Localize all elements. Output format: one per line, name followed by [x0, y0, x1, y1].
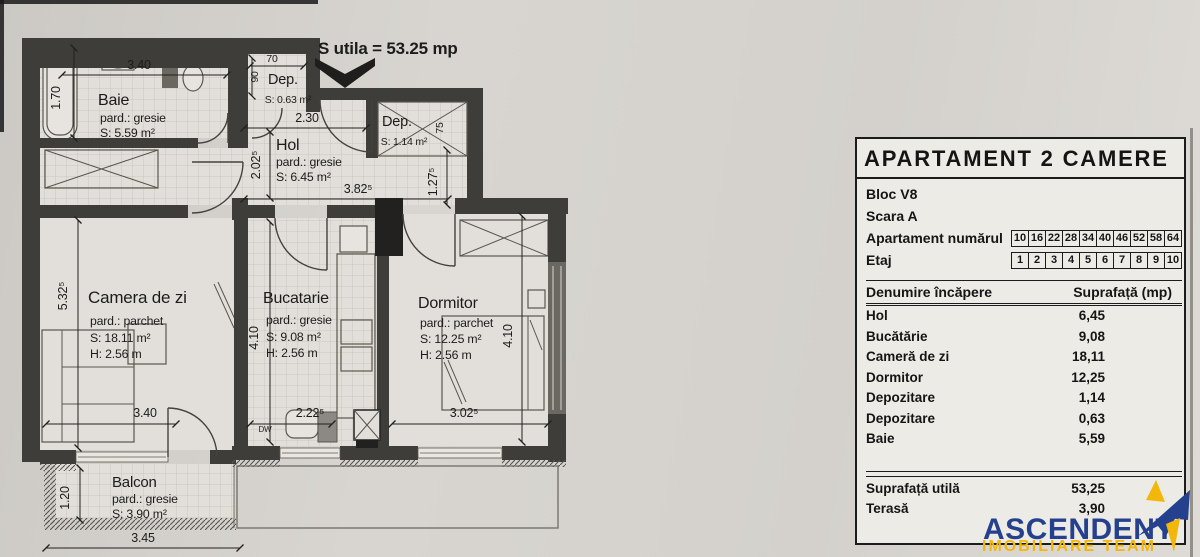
hol-area: S: 6.45 m² — [276, 170, 331, 184]
hol-name: Hol — [276, 137, 299, 154]
room-area: 5,59 — [1020, 429, 1105, 450]
room-area: 12,25 — [1020, 368, 1105, 389]
baie-floor: pard.: gresie — [100, 111, 166, 125]
boiler — [340, 226, 367, 252]
table-row: Bucătărie 9,08 — [866, 327, 1182, 348]
etaj-cell: 3 — [1045, 252, 1063, 269]
room-name: Cameră de zi — [866, 347, 1020, 368]
totals-separator — [866, 471, 1182, 477]
panel-title: APARTAMENT 2 CAMERE — [857, 139, 1184, 179]
dim-dormitor-w: 3.02⁵ — [450, 406, 479, 420]
apartament-number-cell: 40 — [1096, 230, 1114, 247]
table-header: Denumire încăpere Suprafață (mp) — [866, 281, 1182, 306]
etaj-label: Etaj — [866, 252, 1012, 268]
hol-floor: pard.: gresie — [276, 155, 342, 169]
dep1-name: Dep. — [268, 72, 298, 88]
etaj-cells: 1 2 3 4 5 6 7 8 9 10 — [1012, 252, 1182, 269]
dim-bucatarie-w: 2.22⁵ — [296, 406, 325, 420]
etaj-cell: 6 — [1096, 252, 1114, 269]
apartament-number-cells: 10 16 22 28 34 40 46 52 58 64 — [1012, 230, 1182, 247]
balcon-floor: pard.: gresie — [112, 492, 178, 506]
apartament-number-cell: 28 — [1062, 230, 1080, 247]
bucatarie-height: H: 2.56 m — [266, 346, 318, 360]
total-row: Suprafață utilă 53,25 — [866, 479, 1182, 500]
dim-balcon-h: 1.20 — [58, 486, 72, 510]
room-name: Baie — [866, 429, 1020, 450]
scara-label: Scara A — [866, 205, 1182, 227]
dim-bucatarie-h: 4.10 — [247, 326, 261, 350]
apartament-number-cell: 10 — [1011, 230, 1029, 247]
dim-baie-w: 3.40 — [127, 58, 151, 72]
photo-edge-left — [0, 0, 4, 132]
dim-dep2-v: 1.27⁵ — [426, 168, 440, 197]
room-area: 18,11 — [1020, 347, 1105, 368]
etaj-cell: 9 — [1147, 252, 1165, 269]
adjacent-terrace-outline — [237, 466, 558, 528]
dormitor-height: H: 2.56 m — [420, 348, 472, 362]
room-name: Bucătărie — [866, 327, 1020, 348]
floorplan-page: S utila = 53.25 mp Baie pard.: gresie S:… — [0, 0, 1200, 557]
dim-dormitor-h: 4.10 — [501, 324, 515, 348]
room-area: 1,14 — [1020, 388, 1105, 409]
dim-camera-w: 3.40 — [133, 406, 157, 420]
dim-hol-w2: 3.82⁵ — [344, 182, 373, 196]
bloc-label: Bloc V8 — [866, 183, 1182, 205]
apartament-number-cell: 46 — [1113, 230, 1131, 247]
ascendent-logo-tagline: IMOBILIARE TEAM — [982, 538, 1156, 556]
total-value: 53,25 — [1020, 479, 1105, 500]
table-row: Depozitare 1,14 — [866, 388, 1182, 409]
room-name: Hol — [866, 306, 1020, 327]
table-row: Baie 5,59 — [866, 429, 1182, 450]
dormitor-area: S: 12.25 m² — [420, 332, 481, 346]
apartament-number-cell: 16 — [1028, 230, 1046, 247]
baie-name: Baie — [98, 92, 130, 109]
camera-floor: pard.: parchet — [90, 314, 164, 328]
apartament-number-cell: 34 — [1079, 230, 1097, 247]
dep1-area: S: 0.63 m² — [265, 94, 312, 106]
etaj-row: Etaj 1 2 3 4 5 6 7 8 9 10 — [866, 251, 1182, 269]
dim-hol-w: 2.30 — [295, 111, 319, 125]
room-area: 0,63 — [1020, 409, 1105, 430]
etaj-cell: 5 — [1079, 252, 1097, 269]
dim-dep1-w: 70 — [266, 53, 278, 65]
dim-hol-h: 2.02⁵ — [249, 151, 263, 180]
ascendent-star-icon — [1136, 474, 1194, 556]
room-name: Depozitare — [866, 409, 1020, 430]
col-room-header: Denumire încăpere — [866, 284, 992, 300]
apartament-numarul-label: Apartament numărul — [866, 230, 1012, 246]
dim-dep2-d: 75 — [434, 122, 446, 134]
room-name: Depozitare — [866, 388, 1020, 409]
etaj-cell: 7 — [1113, 252, 1131, 269]
etaj-cell: 4 — [1062, 252, 1080, 269]
etaj-cell: 1 — [1011, 252, 1029, 269]
dim-balcon-w: 3.45 — [131, 531, 155, 545]
camera-name: Camera de zi — [88, 288, 187, 307]
balcon-name: Balcon — [112, 474, 157, 491]
camera-height: H: 2.56 m — [90, 347, 142, 361]
apartament-number-row: Apartament numărul 10 16 22 28 34 40 46 … — [866, 229, 1182, 247]
dormitor-floor: pard.: parchet — [420, 316, 494, 330]
bucatarie-name: Bucatarie — [263, 290, 329, 307]
etaj-cell: 2 — [1028, 252, 1046, 269]
dep2-name: Dep. — [382, 114, 412, 130]
dep2-area: S: 1.14 m² — [381, 136, 428, 148]
usable-area-note: S utila = 53.25 mp — [318, 39, 458, 58]
room-area: 6,45 — [1020, 306, 1105, 327]
table-row: Cameră de zi 18,11 — [866, 347, 1182, 368]
col-area-header: Suprafață (mp) — [1073, 284, 1172, 300]
bucatarie-floor: pard.: gresie — [266, 313, 332, 327]
baie-area: S: 5.59 m² — [100, 126, 155, 140]
table-row: Hol 6,45 — [866, 306, 1182, 327]
etaj-cell: 10 — [1164, 252, 1182, 269]
room-name: Dormitor — [866, 368, 1020, 389]
photo-edge-top — [0, 0, 318, 4]
entrance-arrow-icon — [315, 58, 375, 88]
table-row: Depozitare 0,63 — [866, 409, 1182, 430]
dim-dep1-h: 90 — [249, 71, 261, 83]
dishwasher-label: DW — [259, 425, 273, 434]
dim-baie-h: 1.70 — [49, 86, 63, 110]
room-area: 9,08 — [1020, 327, 1105, 348]
apartament-number-cell: 64 — [1164, 230, 1182, 247]
table-row: Dormitor 12,25 — [866, 368, 1182, 389]
apartament-number-cell: 58 — [1147, 230, 1165, 247]
room-area-table: Hol 6,45 Bucătărie 9,08 Cameră de zi 18,… — [866, 306, 1182, 450]
etaj-cell: 8 — [1130, 252, 1148, 269]
apartament-number-cell: 22 — [1045, 230, 1063, 247]
total-label: Suprafață utilă — [866, 479, 1020, 500]
dim-camera-h: 5.32⁵ — [56, 282, 70, 311]
apartament-number-cell: 52 — [1130, 230, 1148, 247]
camera-area: S: 18.11 m² — [90, 331, 151, 345]
balcon-area: S: 3.90 m² — [112, 507, 167, 521]
dormitor-name: Dormitor — [418, 295, 479, 312]
bucatarie-area: S: 9.08 m² — [266, 330, 321, 344]
